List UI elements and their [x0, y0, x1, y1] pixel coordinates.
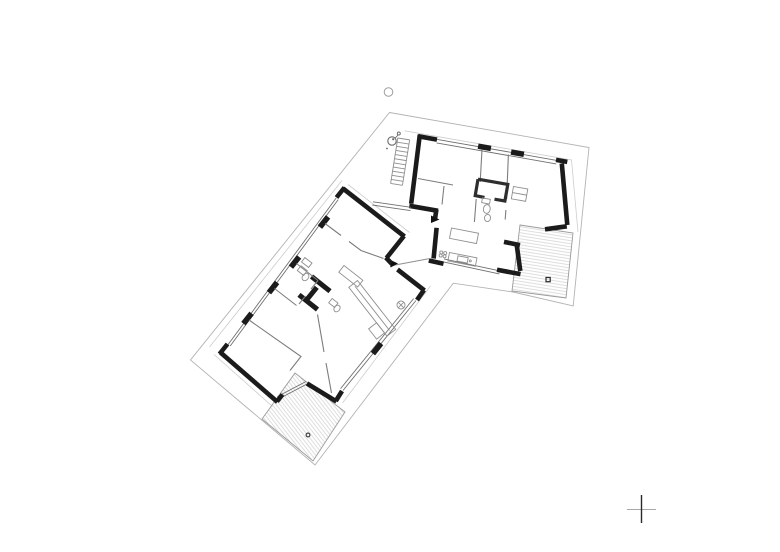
- tree-trunk-dot: [392, 138, 394, 140]
- floor-plan-svg: [0, 0, 780, 552]
- crop-mark-icon: [627, 495, 656, 523]
- burner-icon: [443, 255, 446, 258]
- burner-icon: [439, 254, 442, 257]
- wall-kitchen-west: [434, 228, 437, 259]
- wall-southwest: [221, 353, 278, 403]
- wall-north-hook: [337, 188, 345, 198]
- burner-icon: [440, 251, 443, 254]
- eaves-lower-se: [343, 286, 431, 403]
- tree-small-circle: [397, 132, 400, 135]
- lower-wing: [220, 188, 425, 403]
- window-pier: [289, 255, 301, 269]
- sideboard-divider: [355, 286, 389, 330]
- table-outline: [449, 228, 478, 244]
- survey-circle-icon: [384, 88, 393, 97]
- tree-branch: [396, 135, 399, 138]
- partition: [325, 224, 384, 259]
- toilet-cistern-icon: [482, 198, 491, 204]
- partition: [480, 150, 482, 183]
- upper-bathroom-block: [475, 179, 508, 222]
- wall-west-corner: [220, 344, 228, 354]
- wall-entry-notch: [387, 236, 405, 258]
- link-glazing: [372, 202, 411, 211]
- partition: [474, 199, 476, 222]
- wall-top-right-corner: [556, 160, 567, 162]
- wardrobe-divider: [512, 193, 526, 196]
- wall-south-hook: [336, 391, 342, 401]
- wall-east-hook: [417, 290, 424, 300]
- drain-cross: [398, 302, 404, 308]
- partition: [442, 186, 444, 205]
- dining-table-icon: [449, 228, 478, 244]
- eaves-lower-nw: [210, 181, 343, 348]
- wall-kitchen-corner: [429, 261, 444, 264]
- window-top-wall: [437, 139, 557, 164]
- shower-drain-icon: [397, 301, 405, 309]
- wall-entry-east: [398, 270, 425, 291]
- eaves-lower-sw: [214, 355, 273, 407]
- toilet-bowl-icon: [483, 204, 491, 214]
- wall-east: [562, 164, 568, 226]
- partition: [249, 320, 301, 371]
- fireplace-core: [299, 277, 330, 310]
- partition: [275, 289, 297, 306]
- drawing-sheet: [0, 0, 780, 552]
- partition: [318, 315, 332, 394]
- hob-icon: [439, 251, 447, 258]
- desk-icon: [339, 266, 363, 287]
- window-pier: [267, 281, 279, 295]
- faucet-icon: [469, 260, 471, 262]
- desk-outline: [339, 266, 363, 287]
- window-pier: [318, 215, 330, 229]
- eaves-lower-ne: [348, 185, 410, 233]
- burner-icon: [444, 252, 447, 255]
- lower-fixtures: [297, 258, 405, 343]
- wall-southwest-corner: [409, 206, 438, 211]
- wall-west: [411, 135, 420, 204]
- wall-terrace-top-hook: [504, 242, 520, 245]
- tree-canopy: [388, 137, 396, 145]
- wall-northeast: [343, 189, 405, 237]
- core-wall: [306, 287, 317, 300]
- partition: [418, 179, 453, 186]
- wall-door-jamb: [386, 258, 392, 264]
- tree-dot: [386, 148, 388, 150]
- toilet-bowl-icon: [333, 304, 342, 313]
- lower-walls: [220, 188, 425, 403]
- window-pier: [478, 144, 492, 152]
- wall-east-bottom-hook: [545, 226, 567, 229]
- wardrobe-icon: [511, 187, 527, 202]
- washbasin-icon: [302, 258, 312, 268]
- toilet-cistern-icon: [329, 298, 338, 307]
- washbasin-icon: [484, 214, 491, 222]
- entrance-door-leaf: [393, 259, 431, 266]
- sideboard-icon: [341, 281, 396, 343]
